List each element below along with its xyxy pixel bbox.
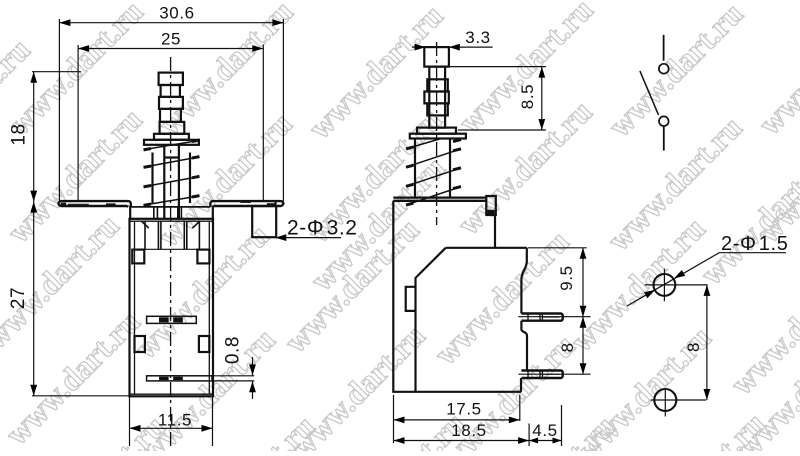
svg-text:2-Φ 3.2: 2-Φ 3.2 — [287, 217, 358, 240]
svg-text:4.5: 4.5 — [532, 421, 557, 440]
svg-text:0.8: 0.8 — [223, 336, 244, 364]
svg-text:11.5: 11.5 — [158, 411, 192, 430]
svg-text:2-Φ 1.5: 2-Φ 1.5 — [721, 233, 788, 255]
svg-text:8: 8 — [558, 342, 577, 352]
svg-text:8: 8 — [684, 342, 703, 352]
svg-text:18: 18 — [9, 123, 30, 145]
svg-text:17.5: 17.5 — [446, 400, 482, 419]
svg-text:30.6: 30.6 — [159, 4, 195, 23]
svg-text:8.5: 8.5 — [518, 84, 537, 109]
svg-text:3.3: 3.3 — [465, 28, 490, 47]
svg-text:18.5: 18.5 — [451, 421, 487, 440]
svg-text:25: 25 — [161, 30, 181, 49]
svg-text:9.5: 9.5 — [557, 265, 576, 290]
svg-text:27: 27 — [8, 287, 29, 309]
